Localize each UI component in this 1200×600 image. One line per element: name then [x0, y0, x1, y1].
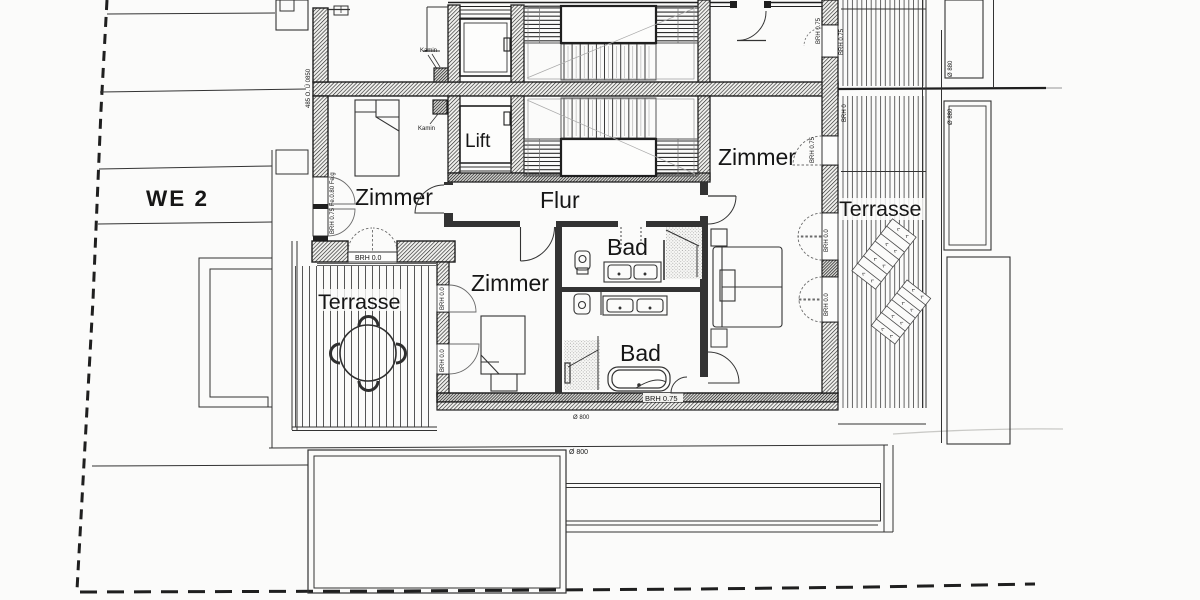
svg-text:Ø 800: Ø 800 — [573, 415, 590, 421]
svg-text:BRH 0.0: BRH 0.0 — [824, 229, 830, 252]
svg-text:Ø 800: Ø 800 — [569, 449, 588, 456]
svg-text:Lift: Lift — [465, 131, 491, 152]
svg-text:Zimmer: Zimmer — [355, 184, 433, 210]
svg-text:Terrasse: Terrasse — [839, 197, 921, 221]
svg-text:BRH 0.0: BRH 0.0 — [355, 255, 382, 262]
svg-text:BRH 0.0: BRH 0.0 — [440, 287, 446, 310]
svg-text:BRH 0.0: BRH 0.0 — [824, 293, 830, 316]
svg-text:BRH 0.75: BRH 0.75 — [645, 394, 678, 403]
svg-text:Kamin: Kamin — [420, 48, 437, 54]
svg-text:BRH 0.75: BRH 0.75 — [816, 17, 822, 44]
svg-text:485 O. Ü 0850: 485 O. Ü 0850 — [305, 68, 312, 108]
svg-text:Ø 880: Ø 880 — [948, 60, 954, 77]
svg-text:Kamin: Kamin — [418, 126, 435, 132]
svg-text:BRH 0.75 Fe.0.80 Fe.g: BRH 0.75 Fe.0.80 Fe.g — [330, 172, 336, 234]
svg-text:Ø 880: Ø 880 — [948, 108, 954, 125]
svg-text:WE 2: WE 2 — [146, 186, 209, 211]
svg-text:BRH 0.75: BRH 0.75 — [810, 136, 816, 163]
svg-text:BRH 0: BRH 0 — [842, 104, 848, 122]
svg-text:Bad: Bad — [620, 340, 661, 366]
svg-text:Zimmer: Zimmer — [718, 144, 796, 170]
svg-text:Flur: Flur — [540, 187, 580, 213]
svg-text:Bad: Bad — [607, 234, 648, 260]
svg-text:Zimmer: Zimmer — [471, 270, 549, 296]
svg-text:BRH 0.75: BRH 0.75 — [839, 28, 845, 55]
svg-text:Terrasse: Terrasse — [318, 290, 400, 314]
svg-text:BRH 0.0: BRH 0.0 — [440, 349, 446, 372]
